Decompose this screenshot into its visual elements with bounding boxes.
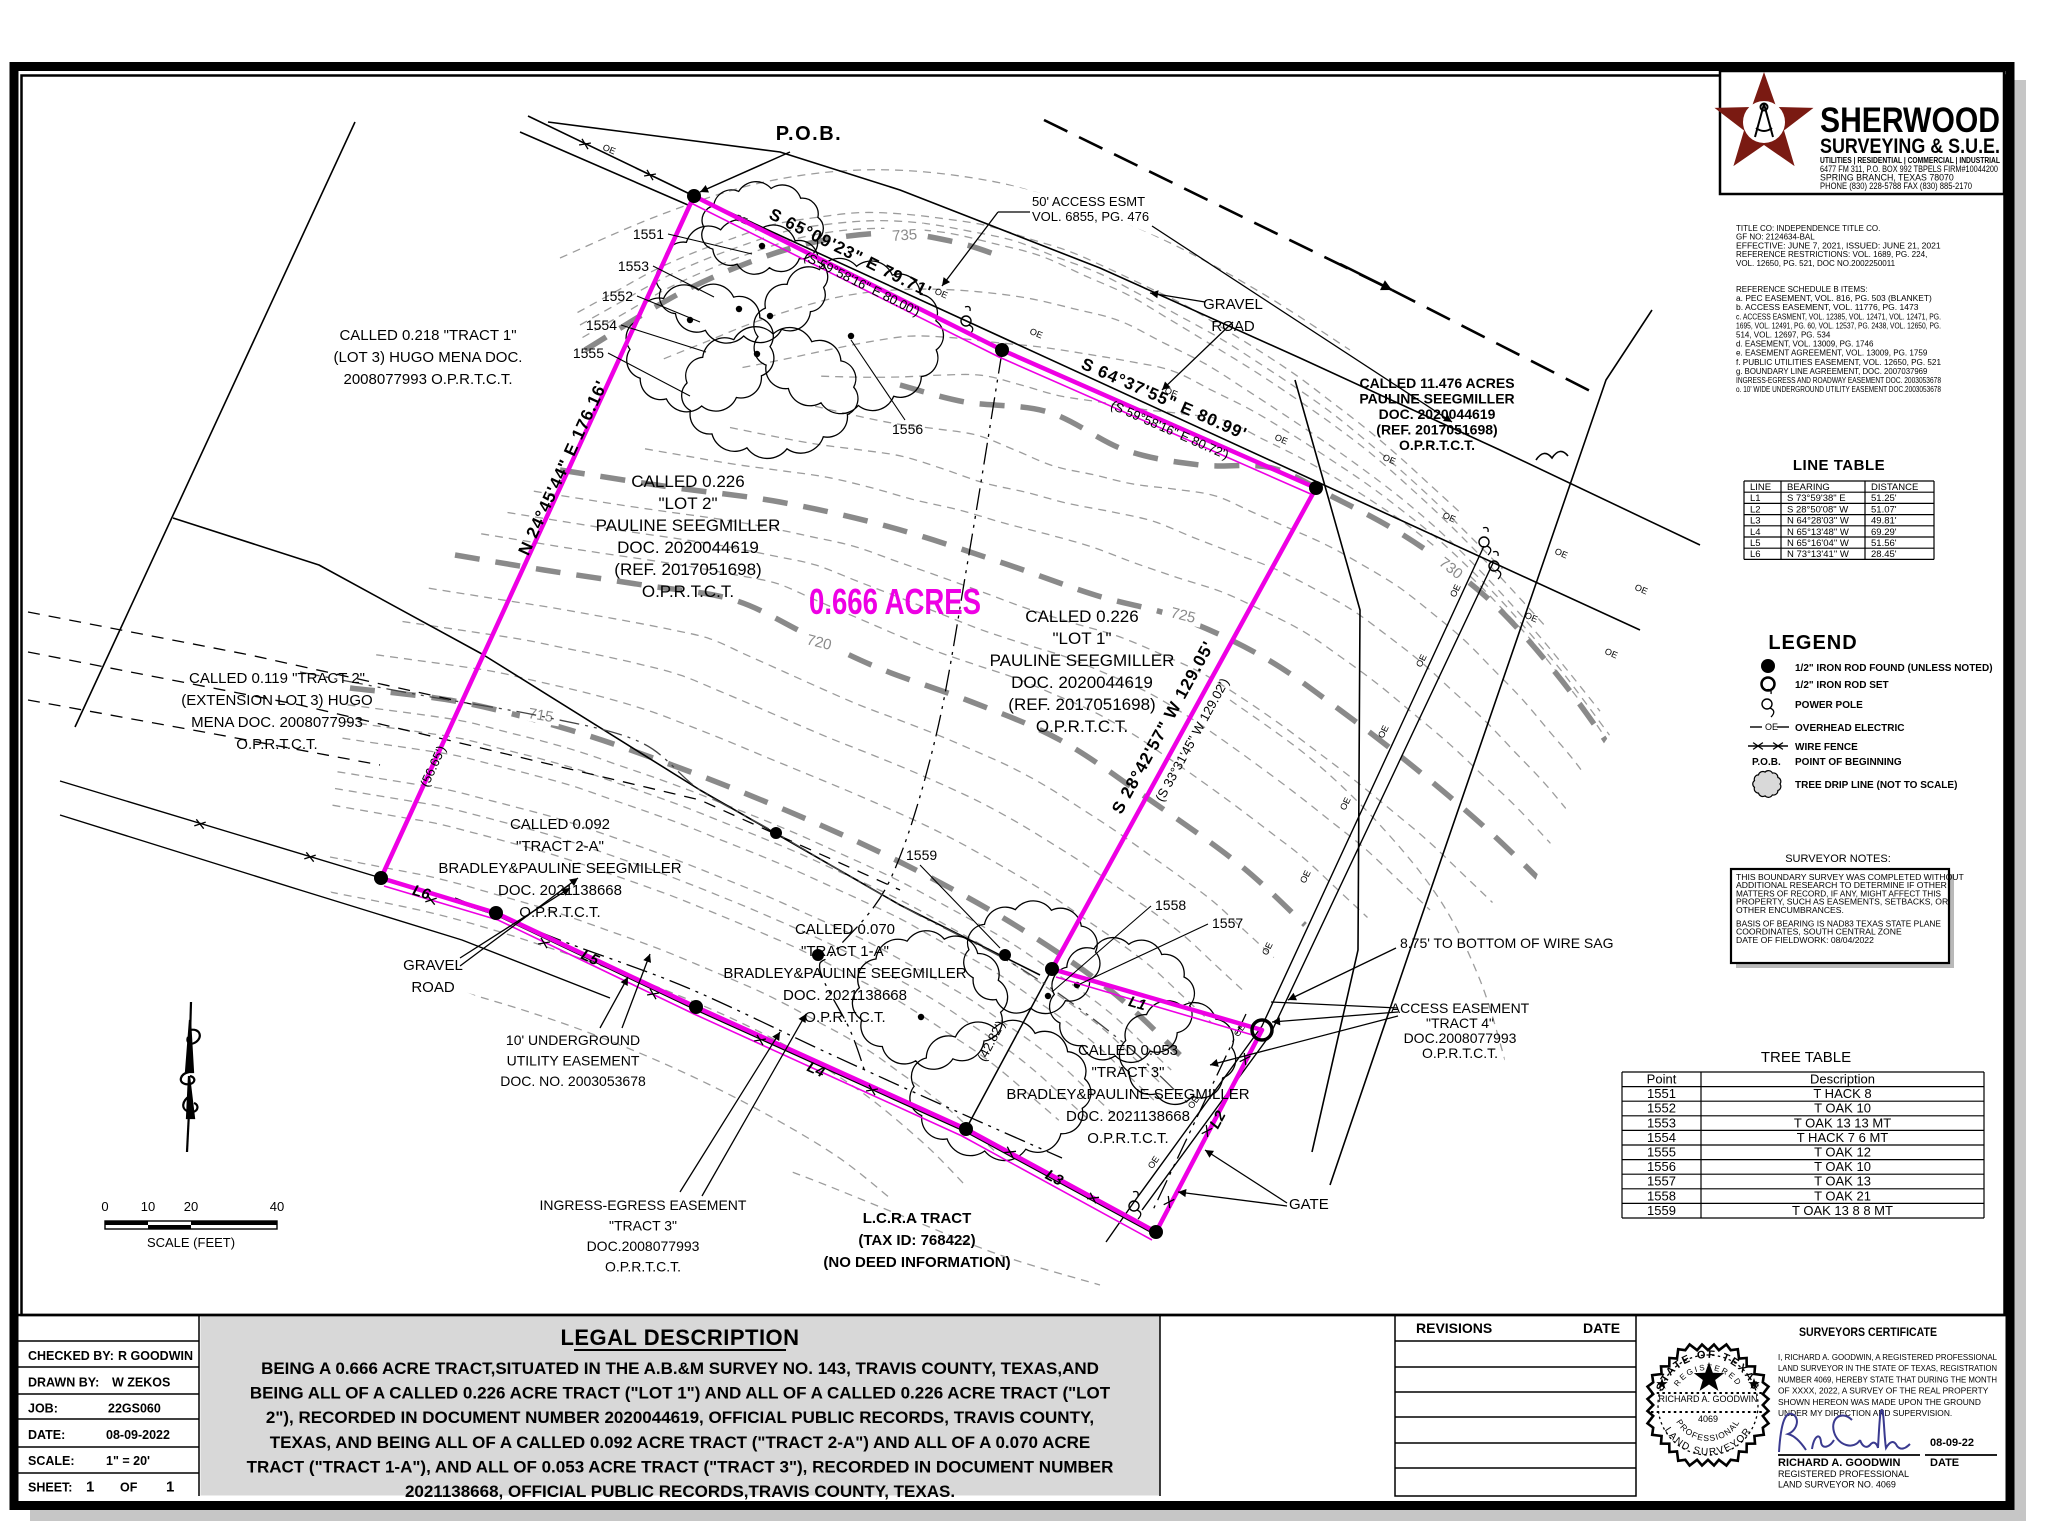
svg-text:NUMBER 4069, HEREBY STATE THAT: NUMBER 4069, HEREBY STATE THAT DURING TH… (1778, 1374, 1997, 1384)
svg-text:DOC. 2021138668: DOC. 2021138668 (1066, 1108, 1190, 1125)
svg-text:(REF. 2017051698): (REF. 2017051698) (1376, 422, 1497, 438)
svg-text:S 73°59'38" E: S 73°59'38" E (1787, 493, 1846, 504)
svg-text:GRAVEL: GRAVEL (1203, 296, 1263, 313)
svg-text:DOC. 2020044619: DOC. 2020044619 (1379, 406, 1496, 422)
svg-text:10' UNDERGROUND: 10' UNDERGROUND (506, 1032, 640, 1048)
svg-text:DOC.2008077993: DOC.2008077993 (587, 1238, 700, 1254)
svg-text:514, VOL. 12697, PG. 534: 514, VOL. 12697, PG. 534 (1736, 331, 1831, 340)
svg-text:OE: OE (1765, 722, 1778, 732)
svg-text:T OAK 12: T OAK 12 (1814, 1145, 1871, 1160)
svg-text:(NO DEED INFORMATION): (NO DEED INFORMATION) (823, 1254, 1010, 1271)
svg-text:DATE:: DATE: (28, 1428, 65, 1442)
svg-text:REFERENCE RESTRICTIONS: VOL. 1: REFERENCE RESTRICTIONS: VOL. 1689, PG. 2… (1736, 250, 1927, 259)
svg-text:ACCESS EASEMENT: ACCESS EASEMENT (1391, 1000, 1530, 1016)
svg-text:CALLED 0.053: CALLED 0.053 (1078, 1042, 1178, 1059)
svg-text:1551: 1551 (633, 226, 664, 242)
svg-text:DOC. 2020044619: DOC. 2020044619 (617, 538, 759, 557)
svg-text:1553: 1553 (1647, 1115, 1676, 1130)
svg-text:Description: Description (1810, 1072, 1875, 1087)
svg-text:BEING ALL OF A CALLED 0.226 A: BEING ALL OF A CALLED 0.226 ACRE TRACT (… (250, 1384, 1111, 1403)
svg-text:0.666 ACRES: 0.666 ACRES (809, 581, 981, 622)
svg-text:BRADLEY&PAULINE SEEGMILLER: BRADLEY&PAULINE SEEGMILLER (723, 965, 966, 982)
svg-text:L.C.R.A TRACT: L.C.R.A TRACT (863, 1210, 972, 1227)
svg-text:N 65°13'48" W: N 65°13'48" W (1787, 527, 1849, 538)
svg-text:P.O.B.: P.O.B. (776, 123, 842, 145)
svg-text:SURVEYOR NOTES:: SURVEYOR NOTES: (1785, 853, 1891, 865)
svg-text:VOL. 6855, PG. 476: VOL. 6855, PG. 476 (1032, 209, 1149, 224)
svg-text:OTHER ENCUMBRANCES.: OTHER ENCUMBRANCES. (1736, 905, 1844, 915)
svg-text:ROAD: ROAD (411, 979, 455, 996)
svg-text:SCALE:: SCALE: (28, 1454, 75, 1468)
svg-text:N 65°16'04" W: N 65°16'04" W (1787, 538, 1849, 549)
svg-text:g. BOUNDARY LINE AGREEMENT, DO: g. BOUNDARY LINE AGREEMENT, DOC. 2007037… (1736, 367, 1928, 376)
svg-text:22GS060: 22GS060 (108, 1402, 161, 1416)
svg-text:SHOWN HEREON WAS MADE UPON THE: SHOWN HEREON WAS MADE UPON THE GROUND (1778, 1397, 1981, 1407)
svg-text:LINE TABLE: LINE TABLE (1793, 457, 1885, 474)
svg-text:e. EASEMENT AGREEMENT, VOL. 13: e. EASEMENT AGREEMENT, VOL. 13009, PG. 1… (1736, 349, 1928, 358)
svg-text:O.P.R.T.C.T.: O.P.R.T.C.T. (605, 1259, 681, 1275)
svg-text:REVISIONS: REVISIONS (1416, 1320, 1492, 1336)
svg-text:CHECKED BY:: CHECKED BY: (28, 1349, 114, 1363)
svg-text:PAULINE SEEGMILLER: PAULINE SEEGMILLER (990, 651, 1175, 670)
svg-text:DOC.2008077993: DOC.2008077993 (1404, 1030, 1517, 1046)
svg-text:40: 40 (270, 1199, 284, 1214)
svg-text:CALLED 0.218 "TRACT 1": CALLED 0.218 "TRACT 1" (339, 327, 516, 344)
svg-text:W ZEKOS: W ZEKOS (112, 1375, 170, 1389)
svg-text:GF NO: 2124634-BAL: GF NO: 2124634-BAL (1736, 233, 1815, 242)
svg-text:JOB:: JOB: (28, 1402, 58, 1416)
svg-text:O.P.R.T.C.T.: O.P.R.T.C.T. (1422, 1045, 1498, 1061)
svg-text:CALLED 0.226: CALLED 0.226 (631, 472, 744, 491)
svg-text:ROAD: ROAD (1211, 318, 1255, 335)
svg-text:1552: 1552 (1647, 1101, 1676, 1116)
svg-text:51.07': 51.07' (1871, 504, 1897, 515)
svg-text:P.O.B.: P.O.B. (1752, 757, 1781, 768)
svg-text:"TRACT 3": "TRACT 3" (609, 1218, 677, 1234)
svg-text:T HACK 7 6 MT: T HACK 7 6 MT (1797, 1130, 1889, 1145)
svg-text:a. PEC EASEMENT, VOL. 816, PG.: a. PEC EASEMENT, VOL. 816, PG. 503 (BLAN… (1736, 294, 1932, 303)
svg-text:RICHARD A. GOODWIN: RICHARD A. GOODWIN (1778, 1457, 1900, 1469)
svg-text:SHEET:: SHEET: (28, 1481, 72, 1495)
svg-text:CALLED 0.119 "TRACT 2": CALLED 0.119 "TRACT 2" (189, 670, 365, 687)
svg-text:POINT OF BEGINNING: POINT OF BEGINNING (1795, 757, 1902, 768)
svg-text:(LOT 3) HUGO MENA DOC.: (LOT 3) HUGO MENA DOC. (334, 349, 523, 366)
svg-text:c. ACCESS EASMENT, VOL. 12385,: c. ACCESS EASMENT, VOL. 12385, VOL. 1247… (1736, 312, 1941, 321)
svg-text:T OAK 13: T OAK 13 (1814, 1174, 1871, 1189)
svg-text:L4: L4 (1750, 527, 1761, 538)
svg-text:2021138668, OFFICIAL PUBLIC RE: 2021138668, OFFICIAL PUBLIC RECORDS,TRAV… (405, 1482, 955, 1501)
svg-text:N 64°28'03" W: N 64°28'03" W (1787, 516, 1849, 527)
svg-text:69.29': 69.29' (1871, 527, 1897, 538)
svg-text:EFFECTIVE: JUNE 7, 2021, ISSUE: EFFECTIVE: JUNE 7, 2021, ISSUED: JUNE 21… (1736, 241, 1941, 250)
svg-text:O.P.R.T.C.T.: O.P.R.T.C.T. (1036, 717, 1128, 736)
svg-text:1555: 1555 (573, 345, 604, 361)
svg-text:S 28°50'08" W: S 28°50'08" W (1787, 504, 1848, 515)
svg-text:LEGAL DESCRIPTION: LEGAL DESCRIPTION (560, 1325, 799, 1350)
svg-text:UTILITY EASEMENT: UTILITY EASEMENT (507, 1053, 640, 1069)
svg-text:CALLED 0.070: CALLED 0.070 (795, 921, 895, 938)
svg-text:SCALE (FEET): SCALE (FEET) (147, 1235, 235, 1250)
svg-text:DRAWN BY:: DRAWN BY: (28, 1375, 99, 1389)
svg-text:MENA DOC. 2008077993: MENA DOC. 2008077993 (191, 714, 363, 731)
svg-text:1559: 1559 (906, 847, 937, 863)
svg-text:f. PUBLIC UTILITIES EASEMENT,: f. PUBLIC UTILITIES EASEMENT, VOL. 12650… (1736, 358, 1942, 367)
svg-text:T HACK 8: T HACK 8 (1813, 1086, 1871, 1101)
svg-text:49.81': 49.81' (1871, 516, 1897, 527)
svg-text:1/2" IRON ROD FOUND (UNLESS NO: 1/2" IRON ROD FOUND (UNLESS NOTED) (1795, 663, 1993, 674)
svg-text:UNDER MY DIRECTION AND SUPERVI: UNDER MY DIRECTION AND SUPERVISION. (1778, 1408, 1952, 1418)
svg-text:1557: 1557 (1212, 915, 1243, 931)
svg-text:Point: Point (1647, 1072, 1677, 1087)
svg-text:T OAK 13 8 8 MT: T OAK 13 8 8 MT (1792, 1203, 1893, 1218)
svg-text:REFERENCE SCHEDULE B ITEMS:: REFERENCE SCHEDULE B ITEMS: (1736, 285, 1868, 294)
svg-text:08-09-22: 08-09-22 (1930, 1437, 1974, 1449)
svg-text:1554: 1554 (1647, 1130, 1676, 1145)
svg-text:"TRACT 1-A": "TRACT 1-A" (801, 943, 889, 960)
svg-text:20: 20 (184, 1199, 198, 1214)
svg-text:1557: 1557 (1647, 1174, 1676, 1189)
svg-text:TITLE CO: INDEPENDENCE TITLE: TITLE CO: INDEPENDENCE TITLE CO. (1736, 224, 1880, 233)
svg-text:L2: L2 (1750, 504, 1761, 515)
svg-text:OF XXXX, 2022, A SURVEY OF THE: OF XXXX, 2022, A SURVEY OF THE REAL PROP… (1778, 1386, 1989, 1396)
svg-text:DOC. 2021138668: DOC. 2021138668 (498, 882, 622, 899)
svg-text:b. ACCESS EASEMENT, VOL. 1177: b. ACCESS EASEMENT, VOL. 11776, PG. 1473 (1736, 303, 1919, 312)
svg-text:I, RICHARD A. GOODWIN, A REGIS: I, RICHARD A. GOODWIN, A REGISTERED PROF… (1778, 1352, 1997, 1362)
svg-text:VOL. 12650, PG. 521, DOC NO.20: VOL. 12650, PG. 521, DOC NO.2002250011 (1736, 259, 1896, 268)
svg-text:R GOODWIN: R GOODWIN (118, 1349, 193, 1363)
svg-text:REGISTERED PROFESSIONAL: REGISTERED PROFESSIONAL (1778, 1469, 1909, 1479)
svg-text:LEGEND: LEGEND (1768, 632, 1857, 654)
svg-text:51.25': 51.25' (1871, 493, 1897, 504)
svg-text:CALLED 0.226: CALLED 0.226 (1025, 607, 1138, 626)
svg-text:51.56': 51.56' (1871, 538, 1897, 549)
svg-text:BRADLEY&PAULINE SEEGMILLER: BRADLEY&PAULINE SEEGMILLER (1006, 1086, 1249, 1103)
svg-text:1554: 1554 (586, 317, 617, 333)
svg-text:1555: 1555 (1647, 1145, 1676, 1160)
svg-text:735: 735 (892, 226, 918, 245)
svg-text:TREE TABLE: TREE TABLE (1761, 1049, 1851, 1066)
svg-text:WIRE FENCE: WIRE FENCE (1795, 742, 1858, 753)
svg-text:OVERHEAD ELECTRIC: OVERHEAD ELECTRIC (1795, 723, 1904, 734)
svg-text:PAULINE SEEGMILLER: PAULINE SEEGMILLER (596, 516, 781, 535)
svg-text:O.P.R.T.C.T.: O.P.R.T.C.T. (642, 582, 734, 601)
svg-text:INGRESS-EGRESS EASEMENT: INGRESS-EGRESS EASEMENT (540, 1197, 747, 1213)
svg-text:SURVEYORS CERTIFICATE: SURVEYORS CERTIFICATE (1799, 1327, 1937, 1339)
svg-text:LAND SURVEYOR NO. 4069: LAND SURVEYOR NO. 4069 (1778, 1480, 1896, 1490)
svg-text:TEXAS, AND BEING ALL OF A CALL: TEXAS, AND BEING ALL OF A CALLED 0.092 A… (270, 1433, 1091, 1452)
svg-text:LINE: LINE (1750, 482, 1771, 493)
svg-text:DOC. 2021138668: DOC. 2021138668 (783, 987, 907, 1004)
svg-text:1558: 1558 (1155, 897, 1186, 913)
svg-text:"LOT 2": "LOT 2" (658, 494, 717, 513)
svg-text:08-09-2022: 08-09-2022 (106, 1428, 170, 1442)
svg-text:LAND SURVEYOR IN THE STATE OF: LAND SURVEYOR IN THE STATE OF TEXAS, REG… (1778, 1363, 1997, 1373)
svg-text:TRACT ("TRACT 1-A"), AND ALL O: TRACT ("TRACT 1-A"), AND ALL OF 0.053 AC… (247, 1457, 1114, 1476)
svg-text:2008077993 O.P.R.T.C.T.: 2008077993 O.P.R.T.C.T. (344, 371, 513, 388)
svg-text:O.P.R.T.C.T.: O.P.R.T.C.T. (1087, 1130, 1168, 1147)
svg-text:1: 1 (166, 1479, 174, 1496)
svg-text:1556: 1556 (892, 421, 923, 437)
svg-text:N 73°13'41" W: N 73°13'41" W (1787, 549, 1849, 560)
svg-text:DATE: DATE (1930, 1457, 1959, 1469)
svg-text:GRAVEL: GRAVEL (403, 957, 463, 974)
svg-text:O.P.R.T.C.T.: O.P.R.T.C.T. (236, 736, 317, 753)
svg-text:T OAK 10: T OAK 10 (1814, 1101, 1871, 1116)
svg-text:INGRESS-EGRESS AND ROADWAY EAS: INGRESS-EGRESS AND ROADWAY EASEMENT DOC.… (1736, 376, 1941, 385)
svg-text:8.75' TO BOTTOM OF WIRE SAG: 8.75' TO BOTTOM OF WIRE SAG (1400, 935, 1614, 951)
svg-text:d. EASEMENT, VOL. 13009, PG. 1: d. EASEMENT, VOL. 13009, PG. 1746 (1736, 340, 1874, 349)
svg-text:OF: OF (120, 1481, 138, 1495)
svg-text:1559: 1559 (1647, 1203, 1676, 1218)
svg-text:(REF. 2017051698): (REF. 2017051698) (614, 560, 761, 579)
svg-text:L6: L6 (1750, 549, 1761, 560)
svg-text:BEING A 0.666 ACRE TRACT,SITUA: BEING A 0.666 ACRE TRACT,SITUATED IN THE… (261, 1359, 1099, 1378)
svg-text:TREE DRIP LINE (NOT TO SCALE): TREE DRIP LINE (NOT TO SCALE) (1795, 780, 1957, 791)
svg-text:T OAK 13 13 MT: T OAK 13 13 MT (1794, 1115, 1891, 1130)
svg-text:DATE: DATE (1583, 1320, 1620, 1336)
svg-text:2"), RECORDED IN DOCUMENT NUMB: 2"), RECORDED IN DOCUMENT NUMBER 2020044… (266, 1408, 1094, 1427)
svg-text:L5: L5 (1750, 538, 1761, 549)
svg-text:0: 0 (101, 1199, 108, 1214)
svg-text:10: 10 (141, 1199, 155, 1214)
svg-text:1: 1 (86, 1479, 94, 1496)
svg-text:RICHARD A. GOODWIN: RICHARD A. GOODWIN (1658, 1394, 1757, 1404)
svg-text:"LOT 1": "LOT 1" (1052, 629, 1111, 648)
svg-text:T OAK 21: T OAK 21 (1814, 1188, 1871, 1203)
svg-text:4069: 4069 (1698, 1414, 1718, 1424)
svg-text:(TAX ID: 768422): (TAX ID: 768422) (858, 1232, 975, 1249)
svg-text:1553: 1553 (618, 258, 649, 274)
svg-text:"TRACT 3": "TRACT 3" (1092, 1064, 1165, 1081)
svg-text:BEARING: BEARING (1787, 482, 1830, 493)
svg-text:CALLED 0.092: CALLED 0.092 (510, 816, 610, 833)
svg-text:1/2" IRON ROD SET: 1/2" IRON ROD SET (1795, 680, 1889, 691)
svg-text:POWER POLE: POWER POLE (1795, 700, 1863, 711)
svg-text:1552: 1552 (602, 288, 633, 304)
svg-text:O.P.R.T.C.T.: O.P.R.T.C.T. (804, 1009, 885, 1026)
svg-text:1558: 1558 (1647, 1188, 1676, 1203)
svg-text:T OAK 10: T OAK 10 (1814, 1159, 1871, 1174)
svg-text:(REF. 2017051698): (REF. 2017051698) (1008, 695, 1155, 714)
svg-text:PHONE (830) 228-5788 FAX (830: PHONE (830) 228-5788 FAX (830) 885-2170 (1820, 181, 1972, 191)
svg-text:L3: L3 (1750, 516, 1761, 527)
svg-text:1" = 20': 1" = 20' (106, 1454, 150, 1468)
svg-text:DATE OF FIELDWORK: 08/04/2022: DATE OF FIELDWORK: 08/04/2022 (1736, 935, 1874, 945)
svg-text:DISTANCE: DISTANCE (1871, 482, 1918, 493)
svg-text:BRADLEY&PAULINE SEEGMILLER: BRADLEY&PAULINE SEEGMILLER (438, 860, 681, 877)
svg-text:L1: L1 (1750, 493, 1761, 504)
svg-text:O.P.R.T.C.T.: O.P.R.T.C.T. (1399, 437, 1475, 453)
svg-text:"TRACT 4": "TRACT 4" (1426, 1015, 1494, 1031)
svg-text:(EXTENSION LOT 3) HUGO: (EXTENSION LOT 3) HUGO (181, 692, 372, 709)
svg-text:1551: 1551 (1647, 1086, 1676, 1101)
svg-text:"TRACT 2-A": "TRACT 2-A" (516, 838, 604, 855)
svg-text:o. 10' WIDE UNDERGROUND UTILIT: o. 10' WIDE UNDERGROUND UTILITY EASEMENT… (1736, 385, 1941, 394)
svg-text:1556: 1556 (1647, 1159, 1676, 1174)
svg-text:DOC. NO. 2003053678: DOC. NO. 2003053678 (500, 1073, 646, 1089)
svg-text:28.45': 28.45' (1871, 549, 1897, 560)
svg-text:PAULINE SEEGMILLER: PAULINE SEEGMILLER (1359, 391, 1514, 407)
svg-text:50' ACCESS ESMT: 50' ACCESS ESMT (1032, 194, 1145, 209)
svg-text:1695, VOL. 12491, PG. 60, VOL.: 1695, VOL. 12491, PG. 60, VOL. 12537, PG… (1736, 321, 1941, 330)
svg-text:DOC. 2020044619: DOC. 2020044619 (1011, 673, 1153, 692)
svg-text:GATE: GATE (1289, 1196, 1329, 1213)
